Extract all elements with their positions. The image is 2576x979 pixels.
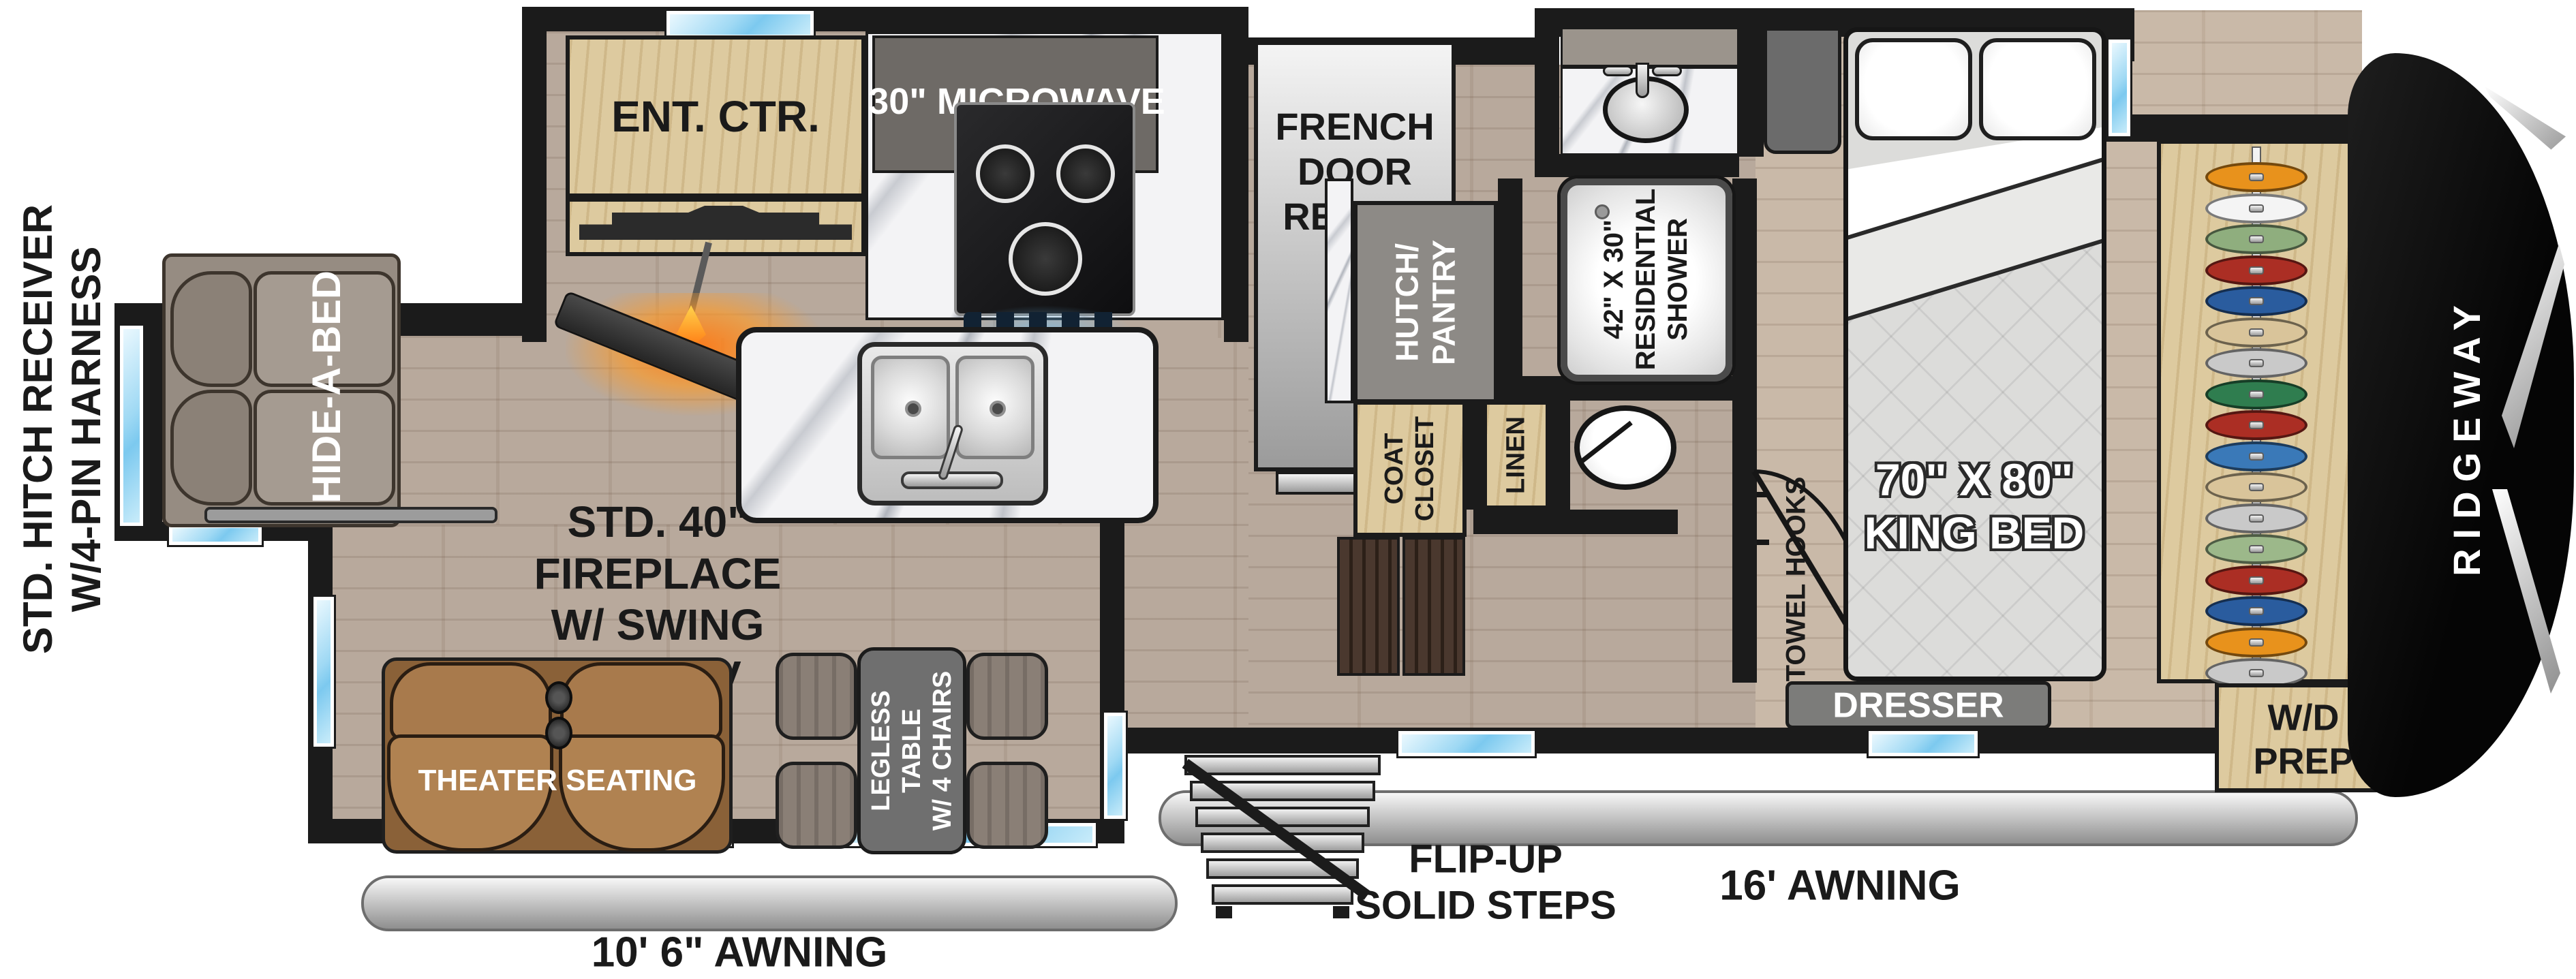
vanity-right-wall [1739,10,1764,157]
hanger-clip-11 [2249,483,2264,491]
window-kitchen-slide [666,11,814,38]
hanger-clip-17 [2249,669,2264,677]
bedroom-steps-2 [1402,537,1465,676]
linen-right-wall [1550,401,1570,511]
steps-foot-left [1216,906,1232,918]
bed-pillow-right [1979,38,2096,140]
window-slide-left [313,597,334,747]
hanger-clip-5 [2249,297,2264,305]
hanger-clip-15 [2249,607,2264,615]
coat-closet-label: COAT CLOSET [1379,416,1441,521]
bed-head-cabinet [1764,27,1841,154]
cupholder-2 [545,717,572,749]
cap-swoosh-1 [2484,86,2566,168]
under-linen-wall [1473,510,1678,534]
theater-label: THEATER SEATING [418,763,696,798]
hanger-clip-1 [2249,173,2264,181]
wd-prep-label: W/D PREP [2253,696,2353,783]
sofa-front-ledge [204,507,497,523]
bath-left-wall [1535,8,1559,158]
sink-drain-right [990,401,1006,417]
flip-up-steps [1184,755,1382,918]
hutch-shower-wall [1498,178,1522,403]
hutch-counter-strip [1325,178,1353,403]
hitch-label: STD. HITCH RECEIVER W/4-PIN HARNESS [14,204,111,654]
rv-floorplan: HIDE-A-BED ENT. CTR. 30" MICROWAVE 21" O… [0,0,2576,979]
bed-pillow-left [1855,38,1972,140]
awning-16-label: 16' AWNING [1719,860,1961,910]
bath-faucet-handle-right [1652,65,1682,76]
ent-ctr-label: ENT. CTR. [611,91,820,143]
window-slide-right [1104,713,1126,819]
dining-chair-1 [776,653,857,740]
bath-faucet-handle-left [1603,65,1633,76]
hanger-clip-7 [2249,359,2264,367]
ridgeway-label: RIDGEWAY [2444,296,2489,576]
shower-label: 42" X 30" RESIDENTIAL SHOWER [1598,189,1695,371]
kitchen-slide-top-wall [522,7,1248,31]
dining-chair-4 [966,762,1048,849]
window-entry-door [1398,731,1535,756]
hanger-clip-12 [2249,514,2264,523]
hide-a-bed-label: HIDE-A-BED [304,270,350,503]
hanger-clip-8 [2249,390,2264,399]
cap-swoosh-3 [2492,489,2560,694]
under-vanity-wall [1535,154,1739,177]
sink-drain-left [905,401,921,417]
bedroom-steps [1337,537,1400,676]
hanger-clip-13 [2249,545,2264,553]
awning-106-label: 10' 6" AWNING [592,927,888,977]
coat-linen-divider [1467,401,1483,510]
burner-front [1009,222,1082,296]
hanger-clip-2 [2249,204,2264,213]
bath-faucet-spout [1636,63,1649,98]
hutch-pantry-label: HUTCH/ PANTRY [1389,240,1463,365]
hanger-clip-14 [2249,576,2264,585]
awning-106-tube [361,875,1178,931]
sofa-back-cushion-2 [170,390,252,506]
hanger-clip-3 [2249,235,2264,243]
hanger-clip-10 [2249,452,2264,461]
window-bottom-rear [169,525,262,545]
legless-table-label: LEGLESS TABLE W/ 4 CHAIRS [866,671,957,830]
hanger-clip-4 [2249,266,2264,275]
window-rear-wall [120,326,143,526]
sofa-back-cushion-1 [170,271,252,387]
hanger-clip-16 [2249,638,2264,647]
vanity-backsplash [1561,27,1739,67]
sink-faucet-bar [901,471,1003,489]
theater-back-left [390,662,552,740]
cupholder-1 [545,681,572,714]
dining-chair-2 [776,762,857,849]
toilet [1574,405,1676,490]
linen-label: LINEN [1501,416,1532,494]
window-bed-side [2109,40,2130,136]
kitchen-slide-left-wall [522,7,547,342]
dresser-label: DRESSER [1833,685,2004,726]
dining-chair-3 [966,653,1048,740]
burner-left [976,144,1034,203]
flip-steps-label: FLIP-UP SOLID STEPS [1355,837,1616,930]
steps-foot-right [1333,906,1349,918]
hanger-clip-9 [2249,421,2264,429]
burner-right [1056,144,1115,203]
cap-swoosh-2 [2496,244,2564,448]
top-wall-wardrobe [2130,114,2362,142]
hanger-clip-6 [2249,328,2264,337]
theater-back-right [560,662,722,740]
king-bed-label: 70" X 80" KING BED [1865,454,2085,560]
